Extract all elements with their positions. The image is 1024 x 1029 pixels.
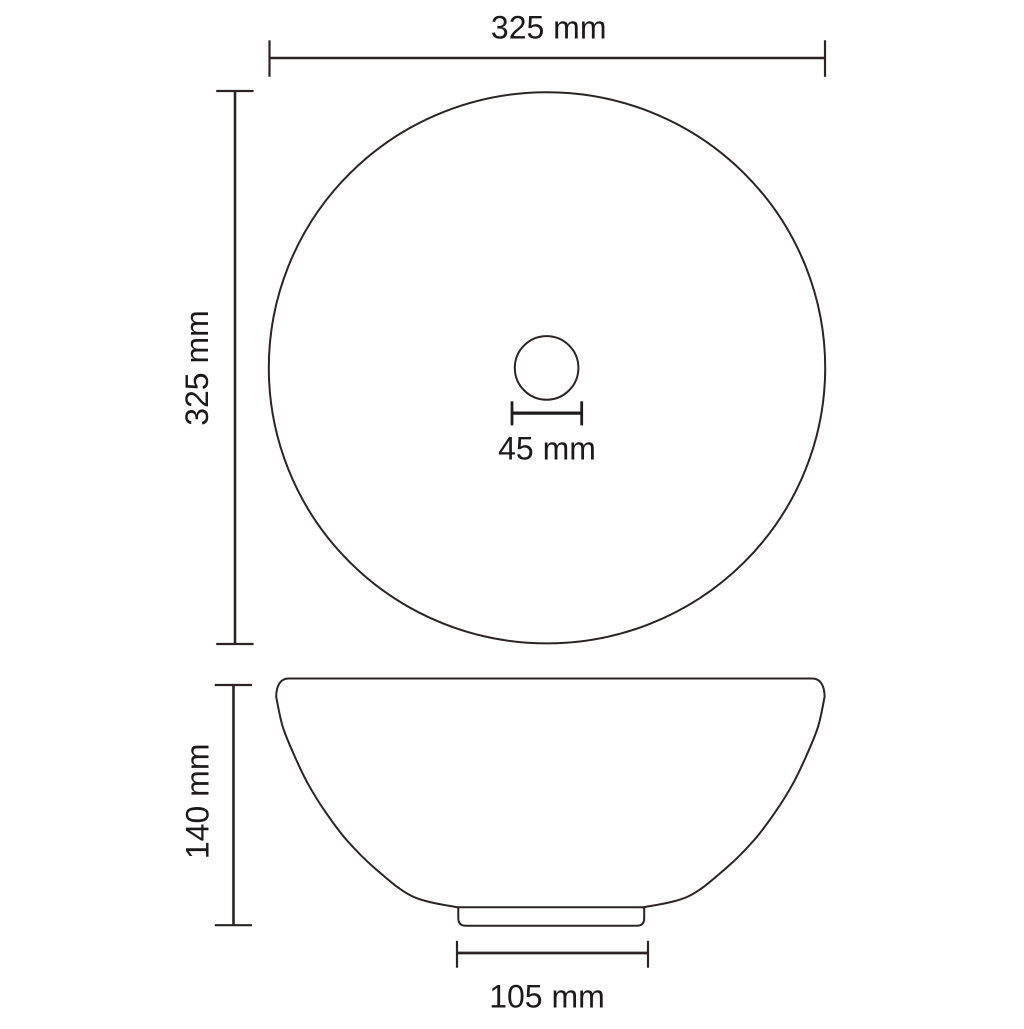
svg-text:45 mm: 45 mm: [498, 430, 596, 466]
svg-text:325 mm: 325 mm: [179, 310, 215, 426]
svg-text:140 mm: 140 mm: [180, 744, 216, 860]
svg-text:105 mm: 105 mm: [489, 979, 605, 1015]
svg-text:325 mm: 325 mm: [491, 10, 607, 46]
